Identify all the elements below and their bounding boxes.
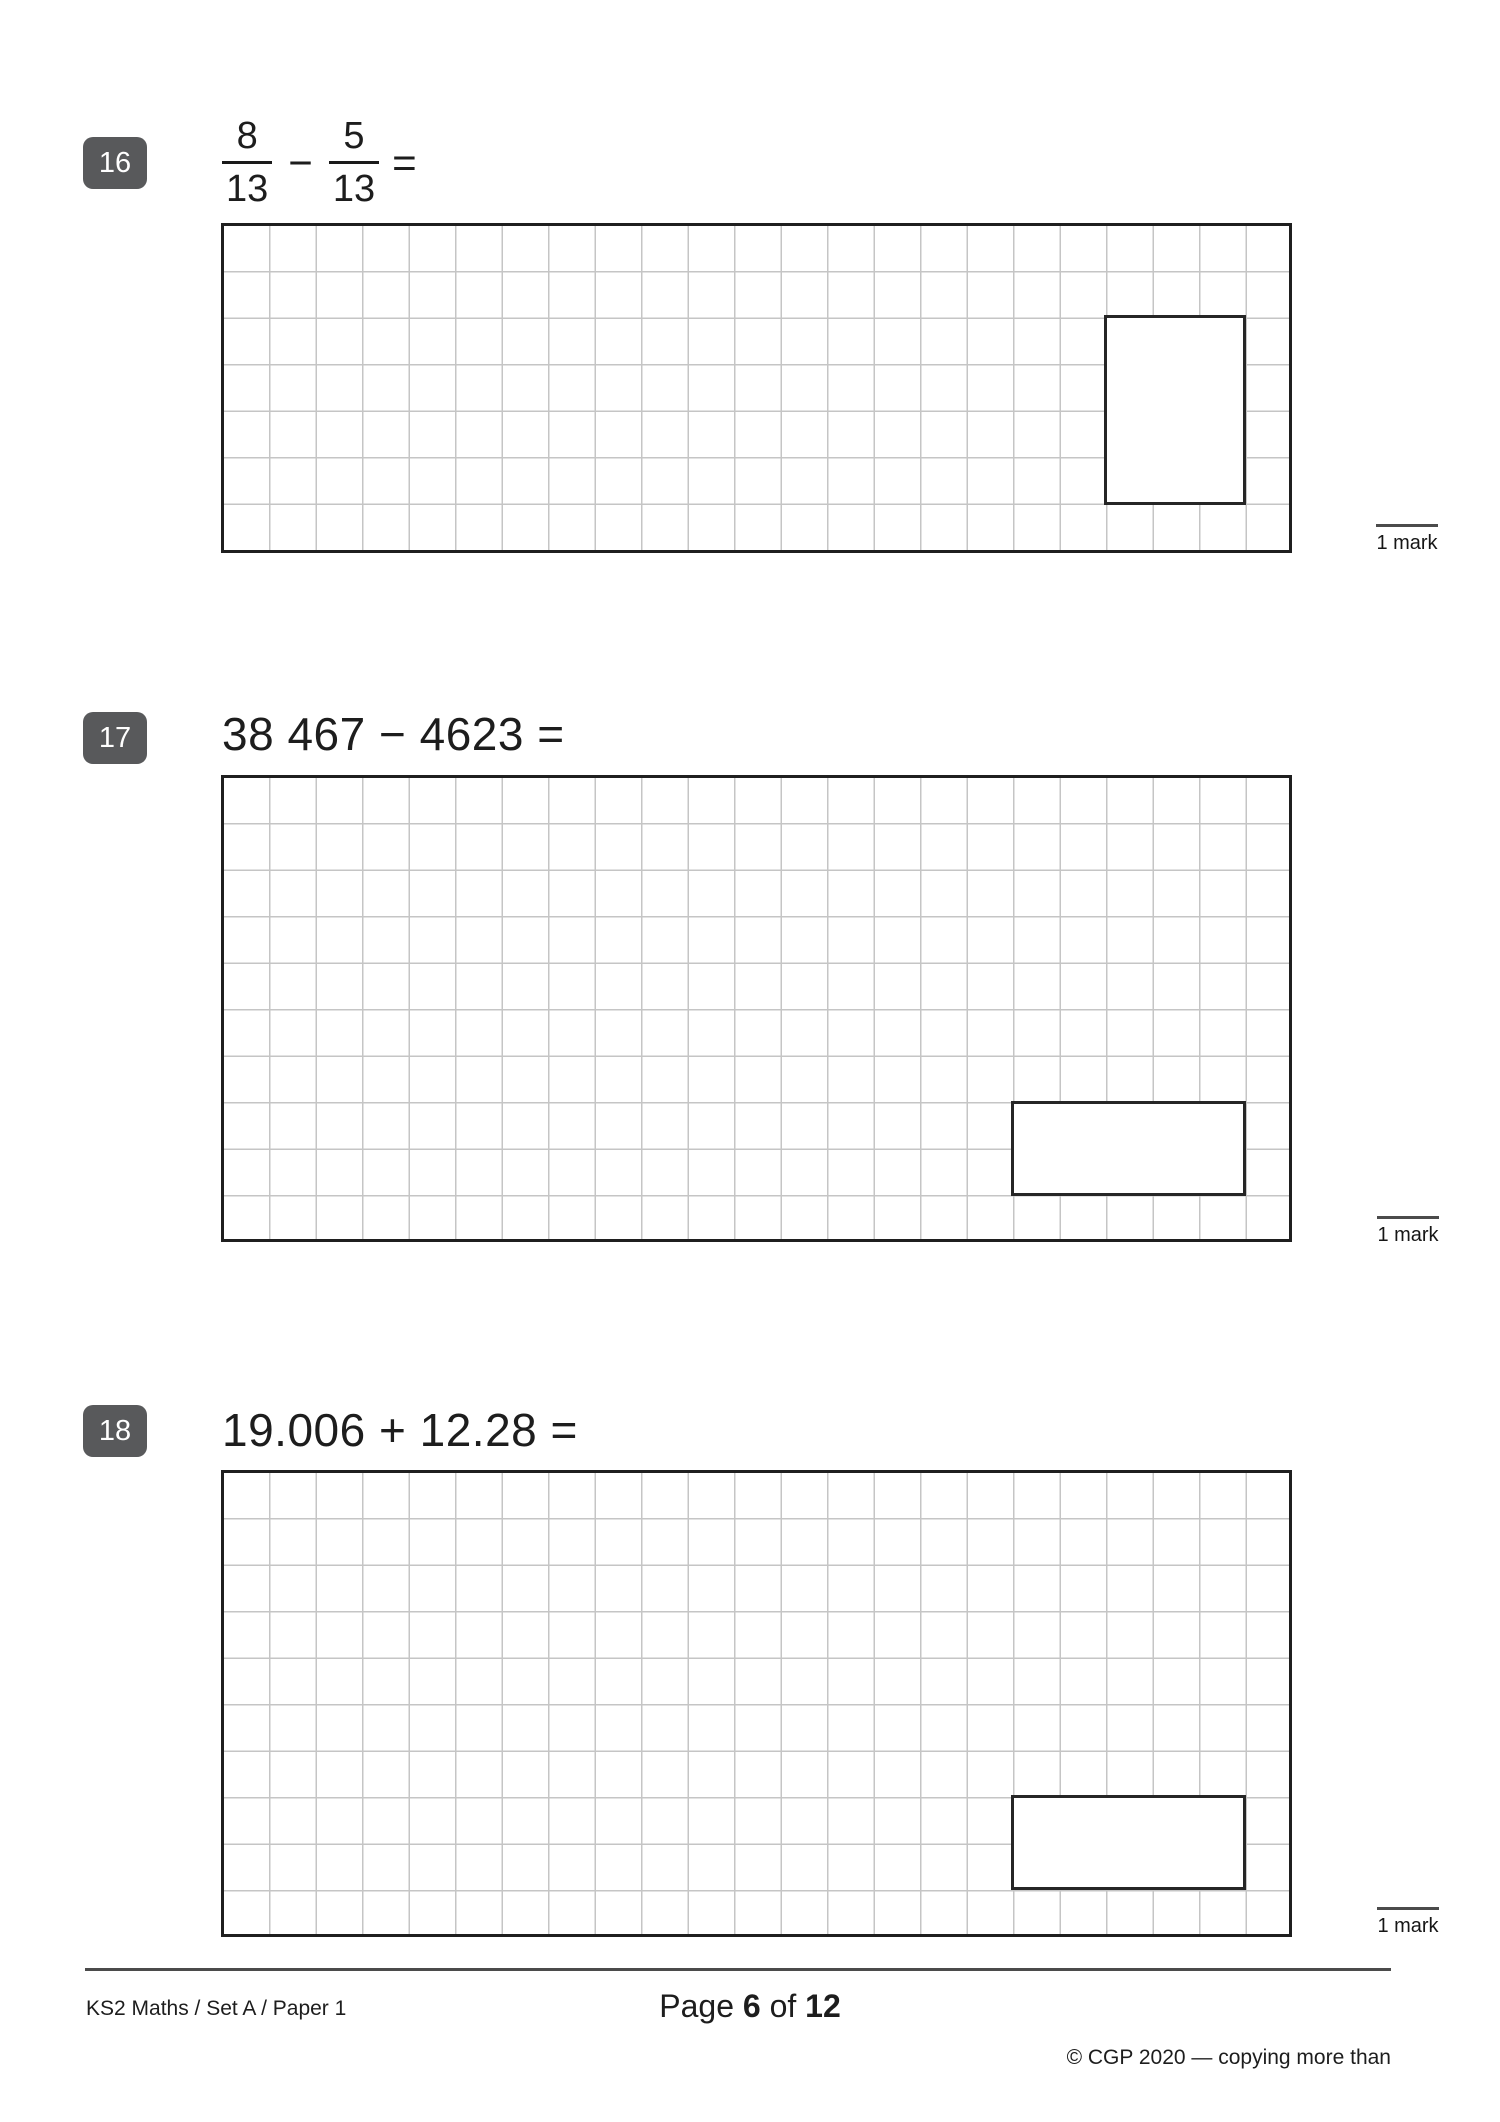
question-18-mark-tally: 1 mark: [1377, 1907, 1439, 1938]
question-18-number-badge: 18: [83, 1405, 147, 1457]
question-16-number-badge: 16: [83, 137, 147, 189]
question-16-answer-box[interactable]: [1104, 315, 1246, 505]
question-18-working-grid: [221, 1470, 1292, 1937]
question-17-equation: 38 467 − 4623 =: [222, 708, 565, 760]
footer-copyright: © CGP 2020 — copying more than 5% of thi…: [1067, 1990, 1391, 2122]
question-16-number: 16: [99, 147, 131, 180]
fraction-first: 8 13: [222, 117, 272, 208]
question-16-working-grid: [221, 223, 1292, 553]
page-word: Page: [659, 1988, 743, 2024]
equals-sign: =: [392, 142, 417, 184]
copyright-line-1: © CGP 2020 — copying more than: [1067, 2044, 1391, 2071]
fraction-first-denominator: 13: [222, 161, 272, 208]
exam-paper-page: 16 8 13 − 5 13 = 1 mark 17 38 467 − 4623…: [0, 0, 1500, 2122]
fraction-second-denominator: 13: [329, 161, 379, 208]
question-17-answer-box[interactable]: [1011, 1101, 1246, 1196]
question-18-answer-box[interactable]: [1011, 1795, 1246, 1890]
question-17-number: 17: [99, 722, 131, 755]
question-18-equation: 19.006 + 12.28 =: [222, 1404, 578, 1456]
question-17-number-badge: 17: [83, 712, 147, 764]
footer-divider: [85, 1968, 1391, 1971]
question-17-working-grid: [221, 775, 1292, 1242]
question-17-mark-tally: 1 mark: [1377, 1216, 1439, 1247]
mark-label: 1 mark: [1377, 1915, 1438, 1937]
minus-operator: −: [288, 142, 313, 184]
mark-label: 1 mark: [1377, 1224, 1438, 1246]
fraction-first-numerator: 8: [233, 117, 262, 161]
fraction-second: 5 13: [329, 117, 379, 208]
page-total: 12: [805, 1988, 841, 2024]
of-word: of: [761, 1988, 805, 2024]
mark-label: 1 mark: [1376, 532, 1437, 554]
question-16-expression: 8 13 − 5 13 =: [222, 117, 417, 208]
question-16-mark-tally: 1 mark: [1376, 524, 1438, 555]
question-18-number: 18: [99, 1415, 131, 1448]
page-number: 6: [743, 1988, 761, 2024]
fraction-second-numerator: 5: [339, 117, 368, 161]
